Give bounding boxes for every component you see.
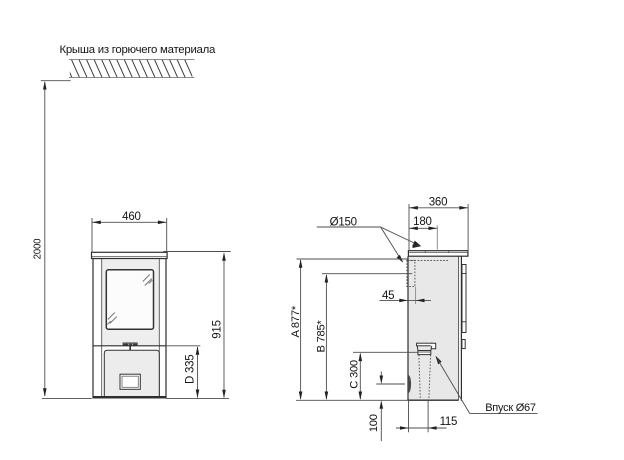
- svg-text:100: 100: [368, 414, 380, 432]
- svg-text:460: 460: [122, 211, 140, 223]
- svg-text:360: 360: [429, 196, 447, 208]
- svg-text:180: 180: [413, 216, 431, 228]
- svg-text:2000: 2000: [33, 238, 44, 260]
- svg-text:C 300: C 300: [348, 360, 360, 389]
- svg-text:45: 45: [382, 290, 394, 302]
- svg-text:B 785*: B 785*: [316, 320, 328, 353]
- svg-text:D 335: D 335: [185, 355, 197, 384]
- svg-text:915: 915: [212, 320, 224, 338]
- svg-text:115: 115: [440, 416, 458, 428]
- svg-text:Крыша из горючего материала: Крыша из горючего материала: [59, 44, 216, 56]
- svg-text:A 877*: A 877*: [290, 305, 302, 337]
- svg-text:Впуск Ø67: Впуск Ø67: [485, 402, 536, 414]
